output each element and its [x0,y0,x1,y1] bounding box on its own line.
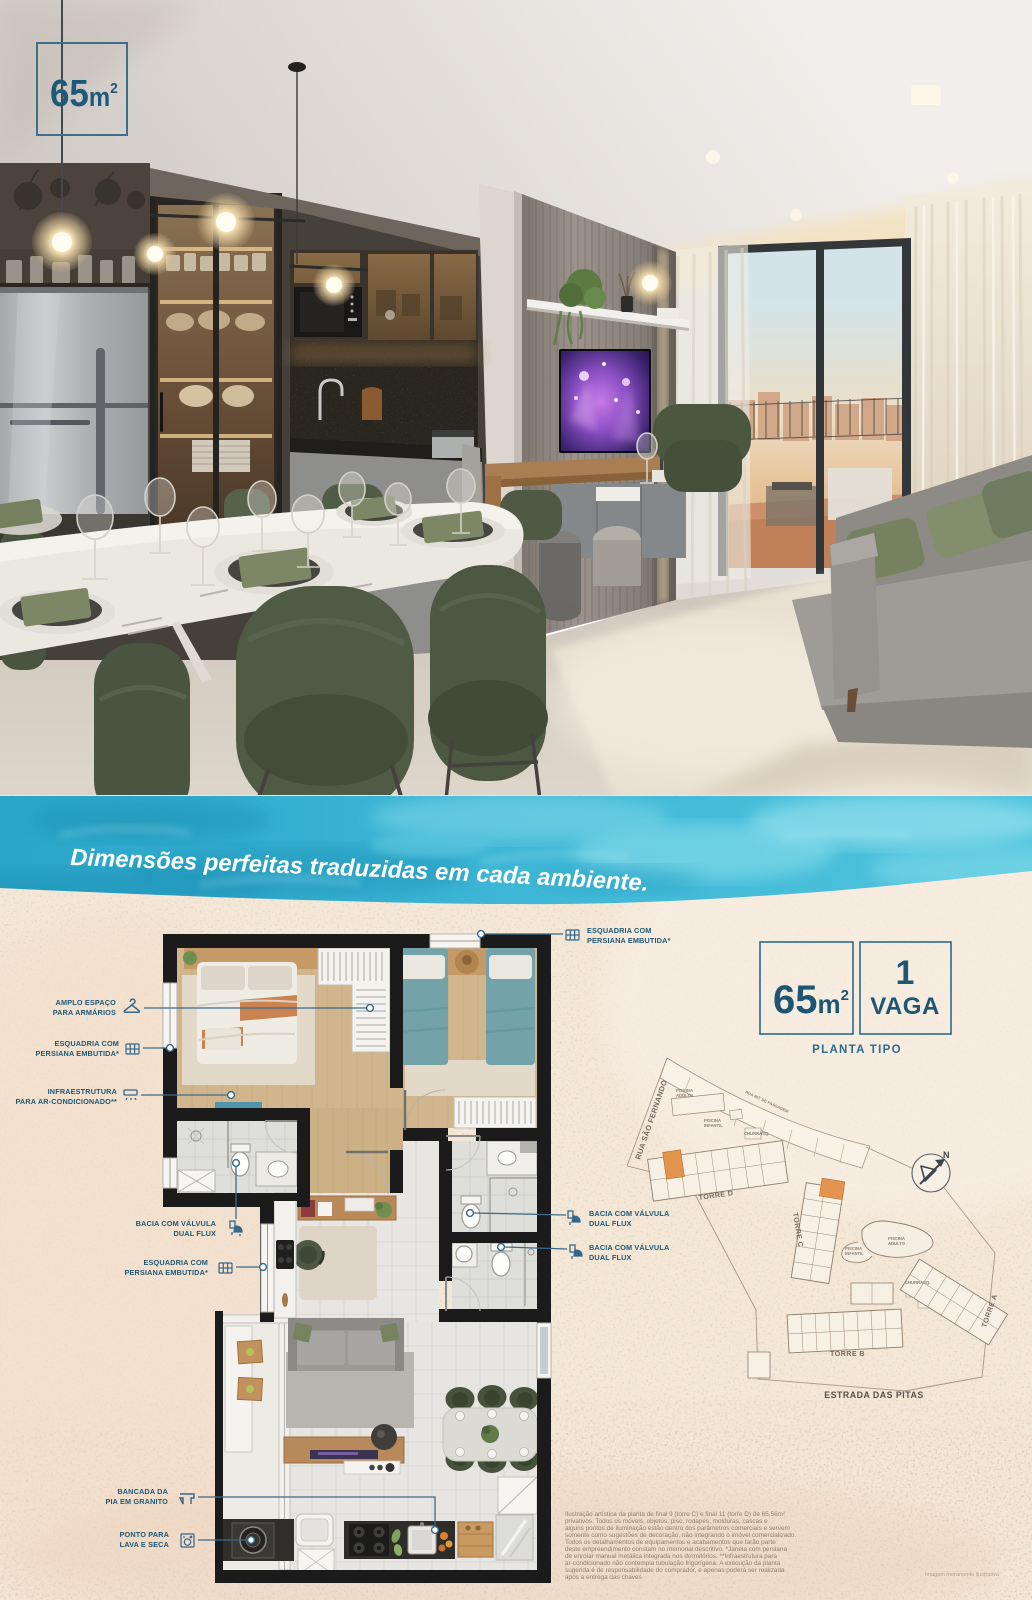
svg-text:CHURRASQ.: CHURRASQ. [905,1280,930,1285]
svg-text:INFRAESTRUTURA: INFRAESTRUTURA [48,1087,118,1096]
svg-text:PERSIANA EMBUTIDA*: PERSIANA EMBUTIDA* [587,936,671,945]
svg-text:alguns pontos de iluminação es: alguns pontos de iluminação estão dentro… [565,1525,790,1532]
svg-text:de enrolar manual metálica int: de enrolar manual metálica integrada nos… [565,1553,778,1560]
svg-text:somente como sugestões de deco: somente como sugestões de decoração, não… [565,1532,796,1539]
svg-text:1: 1 [896,954,915,992]
svg-text:sugerida é de responsabilidade: sugerida é de responsabilidade do compra… [565,1567,785,1574]
svg-text:AMPLO ESPAÇO: AMPLO ESPAÇO [56,998,117,1007]
svg-text:BACIA COM VÁLVULA: BACIA COM VÁLVULA [589,1243,670,1252]
svg-text:N: N [943,1150,950,1160]
svg-text:PARA AR-CONDICIONADO**: PARA AR-CONDICIONADO** [15,1097,117,1106]
svg-text:DUAL FLUX: DUAL FLUX [173,1229,216,1238]
svg-text:Imagem meramente ilustrativa: Imagem meramente ilustrativa [925,1572,1000,1578]
svg-text:ESTRADA DAS PITAS: ESTRADA DAS PITAS [824,1390,923,1400]
svg-text:ESQUADRIA COM: ESQUADRIA COM [54,1039,119,1048]
svg-text:PERSIANA EMBUTIDA*: PERSIANA EMBUTIDA* [35,1049,119,1058]
svg-text:PONTO PARA: PONTO PARA [120,1530,170,1539]
svg-text:INFANTIL: INFANTIL [704,1123,723,1128]
svg-text:ESQUADRIA COM: ESQUADRIA COM [143,1258,208,1267]
svg-text:DUAL FLUX: DUAL FLUX [589,1253,632,1262]
svg-text:Imagem meramente ilustrativa: Imagem meramente ilustrativa [822,745,924,754]
svg-text:DUAL FLUX: DUAL FLUX [589,1219,632,1228]
svg-text:PIA EM GRANITO: PIA EM GRANITO [105,1497,168,1506]
svg-text:INFANTIL: INFANTIL [845,1251,864,1256]
svg-text:privativos. Todos os móveis, o: privativos. Todos os móveis, objetos, pi… [565,1518,768,1525]
svg-text:ESQUADRIA COM: ESQUADRIA COM [587,926,652,935]
svg-text:LAVA E SECA: LAVA E SECA [120,1540,170,1549]
svg-text:após a entrega das chaves.: após a entrega das chaves. [565,1574,644,1581]
svg-text:BACIA COM VÁLVULA: BACIA COM VÁLVULA [589,1209,670,1218]
svg-text:ADULTO: ADULTO [888,1241,906,1246]
svg-text:VAGA: VAGA [870,993,940,1020]
svg-text:TORRE B: TORRE B [830,1349,865,1358]
svg-text:PARA ARMÁRIOS: PARA ARMÁRIOS [53,1008,116,1017]
svg-text:BACIA COM VÁLVULA: BACIA COM VÁLVULA [136,1219,217,1228]
svg-text:deste empreendimento constam n: deste empreendimento constam no memorial… [565,1546,787,1553]
svg-text:PERSIANA EMBUTIDA*: PERSIANA EMBUTIDA* [124,1268,208,1277]
svg-text:BANCADA DA: BANCADA DA [117,1487,168,1496]
svg-text:PLANTA TIPO: PLANTA TIPO [812,1044,902,1056]
svg-text:Todos os detalhamentos de equi: Todos os detalhamentos de equipamentos e… [565,1539,776,1546]
svg-text:CHURRASQ.: CHURRASQ. [744,1131,769,1136]
svg-text:ar-condicionado não contempla: ar-condicionado não contempla tubulação … [565,1560,781,1567]
svg-text:Ilustração artística da planta: Ilustração artística da planta de final … [565,1511,785,1518]
svg-text:ADULTO: ADULTO [676,1093,694,1098]
